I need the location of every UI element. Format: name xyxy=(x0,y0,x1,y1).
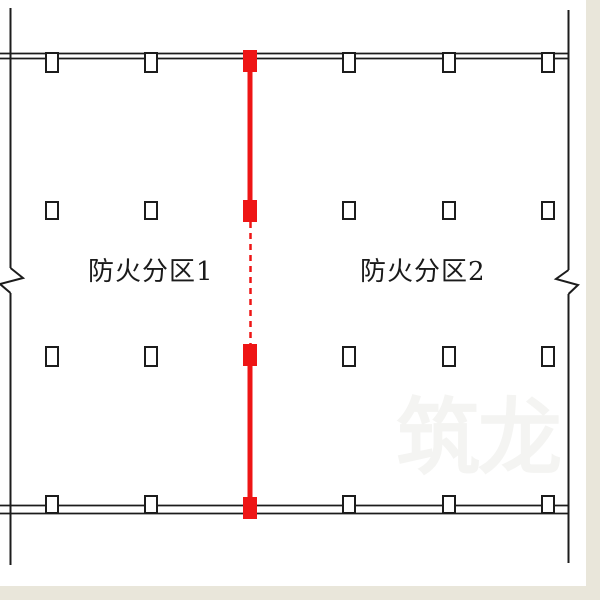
column xyxy=(443,496,455,513)
page-background: 筑龙 防火分区1 防火分区2 xyxy=(0,0,600,600)
column xyxy=(343,53,355,72)
column xyxy=(542,347,554,366)
left-wall xyxy=(0,8,23,565)
column xyxy=(46,202,58,219)
column xyxy=(145,496,157,513)
fire-separation-node xyxy=(243,344,257,366)
column xyxy=(443,347,455,366)
column xyxy=(443,202,455,219)
break-line-icon xyxy=(556,270,578,294)
bottom-wall xyxy=(0,506,569,514)
column-row-upper xyxy=(46,202,554,219)
fire-separation-node xyxy=(243,200,257,222)
column xyxy=(443,53,455,72)
right-wall xyxy=(556,10,578,563)
column xyxy=(542,202,554,219)
column xyxy=(145,202,157,219)
column xyxy=(542,53,554,72)
column-row-bottom xyxy=(46,496,554,513)
column xyxy=(46,347,58,366)
fire-separation-solid-segment xyxy=(248,72,253,200)
column xyxy=(145,53,157,72)
fire-separation-node xyxy=(243,497,257,519)
column-row-top xyxy=(46,53,554,72)
column xyxy=(343,496,355,513)
column-row-lower xyxy=(46,347,554,366)
zone2-label: 防火分区2 xyxy=(360,257,486,287)
column xyxy=(145,347,157,366)
column xyxy=(343,202,355,219)
zone1-label: 防火分区1 xyxy=(88,257,214,287)
column xyxy=(46,53,58,72)
break-line-icon xyxy=(0,268,23,293)
column xyxy=(46,496,58,513)
fire-separation-node xyxy=(243,50,257,72)
fire-separation-line xyxy=(243,50,257,519)
column xyxy=(343,347,355,366)
column xyxy=(542,496,554,513)
floor-plan-drawing xyxy=(0,0,600,600)
fire-separation-solid-segment xyxy=(248,366,253,497)
top-wall xyxy=(0,54,569,59)
